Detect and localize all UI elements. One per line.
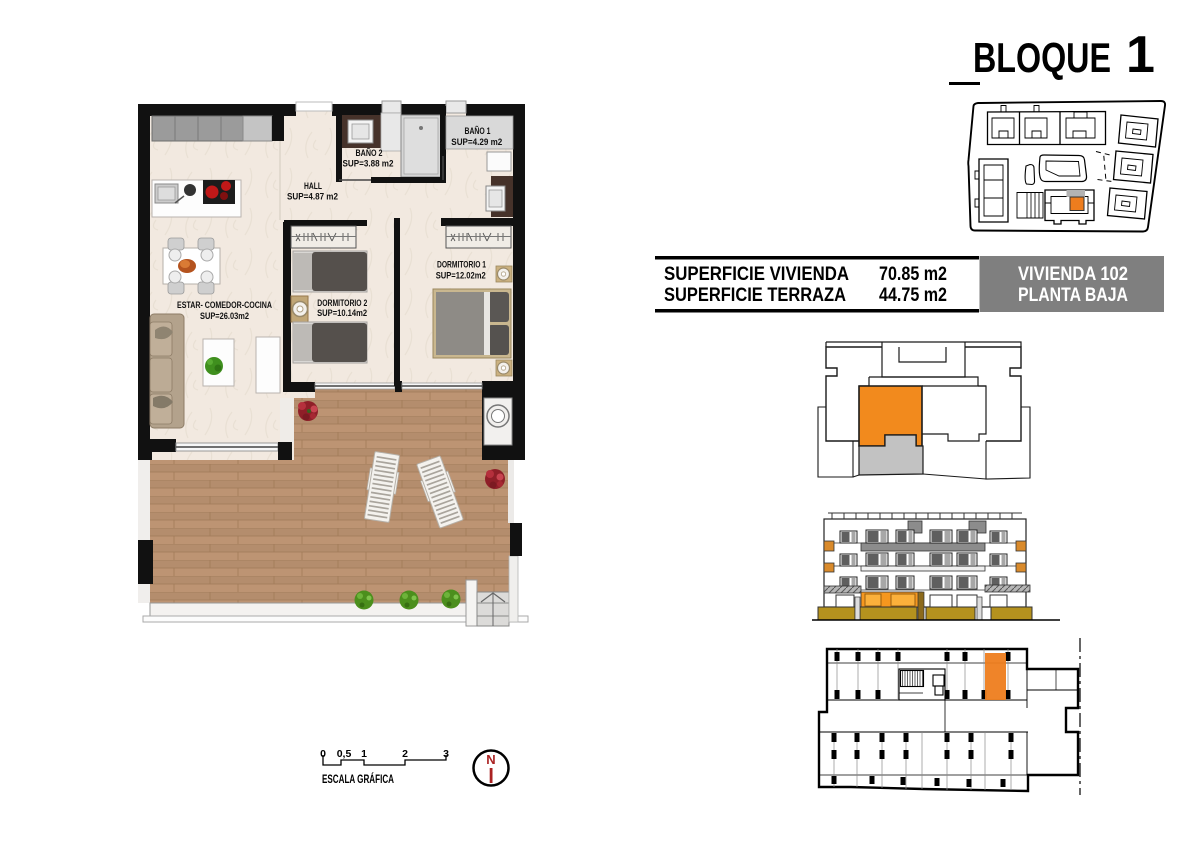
svg-text:BAÑO 1: BAÑO 1	[465, 126, 492, 137]
svg-text:SUP=3.88 m2: SUP=3.88 m2	[343, 159, 394, 170]
svg-text:N: N	[486, 752, 495, 767]
svg-text:2: 2	[402, 748, 408, 760]
svg-text:SUP=4.29 m2: SUP=4.29 m2	[451, 137, 502, 148]
svg-text:0,5: 0,5	[337, 748, 352, 760]
svg-text:BLOQUE: BLOQUE	[973, 34, 1111, 81]
svg-text:BAÑO 2: BAÑO 2	[356, 148, 383, 159]
svg-text:PLANTA BAJA: PLANTA BAJA	[1018, 285, 1128, 306]
svg-text:70.85 m2: 70.85 m2	[879, 264, 947, 285]
svg-text:1: 1	[1126, 26, 1155, 84]
svg-text:ESTAR- COMEDOR-COCINA: ESTAR- COMEDOR-COCINA	[177, 300, 272, 311]
svg-text:SUPERFICIE TERRAZA: SUPERFICIE TERRAZA	[664, 285, 846, 306]
svg-text:3: 3	[443, 748, 449, 760]
svg-text:SUP=4.87 m2: SUP=4.87 m2	[287, 192, 338, 203]
svg-text:SUP=10.14m2: SUP=10.14m2	[317, 308, 367, 319]
svg-text:SUP=26.03m2: SUP=26.03m2	[200, 311, 249, 322]
svg-text:44.75 m2: 44.75 m2	[879, 285, 947, 306]
svg-text:VIVIENDA 102: VIVIENDA 102	[1018, 264, 1128, 285]
svg-text:ESCALA GRÁFICA: ESCALA GRÁFICA	[322, 773, 394, 786]
svg-text:DORMITORIO 1: DORMITORIO 1	[437, 260, 487, 271]
svg-text:1: 1	[361, 748, 367, 760]
svg-text:HALL: HALL	[304, 181, 322, 192]
svg-text:0: 0	[320, 748, 326, 760]
svg-text:SUP=12.02m2: SUP=12.02m2	[436, 271, 486, 282]
svg-text:SUPERFICIE VIVIENDA: SUPERFICIE VIVIENDA	[664, 264, 849, 285]
